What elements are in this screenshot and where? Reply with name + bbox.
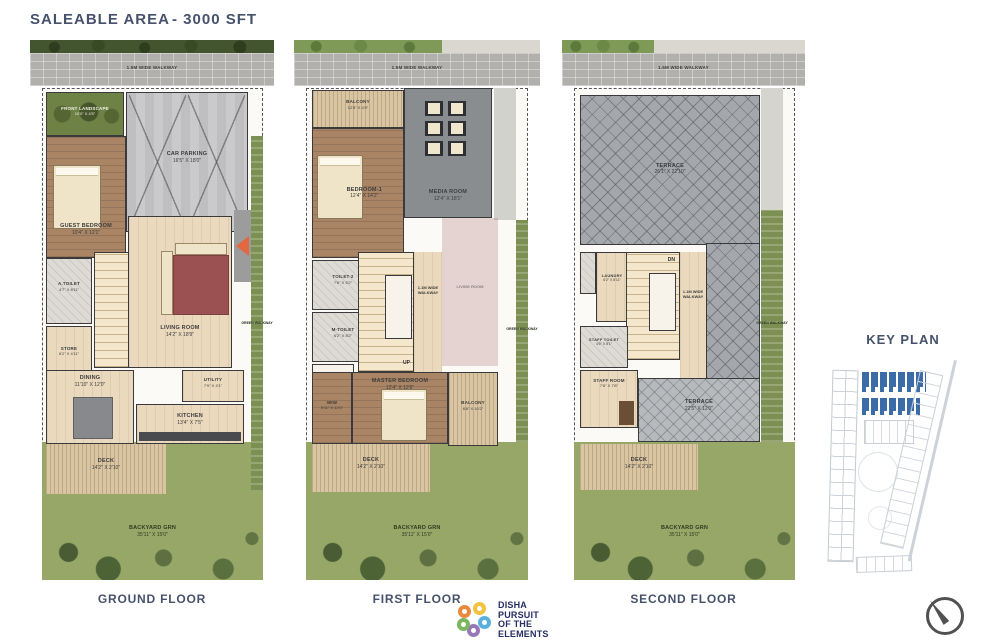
green-walkway-strip: GREEN WALKWAY	[251, 136, 263, 492]
entry-strip	[234, 210, 251, 282]
room-label: WIW	[313, 400, 351, 406]
room-label: MEDIA ROOM	[405, 189, 491, 196]
staircase: DN	[626, 252, 680, 360]
sofa-furniture	[161, 251, 173, 315]
parking-bay-mark	[188, 95, 245, 229]
hedge-strip	[30, 40, 274, 53]
walkway-label: 1.5M WIDE WALKWAY	[562, 65, 805, 71]
room-label: STAFF TOILET	[581, 337, 627, 342]
room-label: DINING	[47, 375, 133, 382]
room-label: LIVING ROOM	[442, 285, 498, 290]
keyplan-bottom-plots	[856, 555, 913, 573]
logo-tagline-line: ELEMENTS	[498, 630, 549, 640]
room-dims: 12'8" X 4'9"	[313, 105, 403, 110]
terrace-upper-arm	[706, 243, 760, 379]
room-guest-bedroom: GUEST BEDROOM10'4" X 12'1"	[46, 136, 126, 258]
kitchen-counter	[139, 432, 241, 441]
room-dims: 7'8" X 7'8"	[581, 383, 637, 388]
green-walkway-strip: GREEN WALKWAY	[516, 220, 528, 442]
room-balcony-rear: BALCONY6'8" X 10'2"	[448, 372, 498, 446]
room-label: GREEN WALKWAY	[237, 321, 277, 325]
keyplan-left-block	[827, 370, 858, 563]
room-dims: 35'11" X 15'0"	[574, 532, 795, 538]
room-dims: 7'9" X 4'1"	[183, 383, 243, 388]
walkway-label: 1.5M WIDE WALKWAY	[294, 65, 540, 71]
bed-furniture	[53, 165, 101, 229]
pavement-strip	[654, 40, 805, 53]
room-label: BACKYARD GRN	[574, 525, 795, 532]
room-label: LAUNDRY	[597, 273, 627, 278]
entry-arrow-icon	[236, 236, 249, 256]
stairs-direction-label: DN	[668, 257, 675, 263]
room-label: UTILITY	[183, 377, 243, 383]
room-dims: 26'1" X 22'10"	[581, 169, 759, 175]
room-living-room: LIVING ROOM14'2" X 18'9"	[128, 216, 232, 368]
ground-floor-caption: GROUND FLOOR	[30, 592, 274, 606]
room-dims: 11'10" X 12'0"	[47, 382, 133, 388]
room-dims: 4'6" X 8'1"	[581, 342, 627, 346]
room-label: MASTER BEDROOM	[353, 378, 447, 385]
corridor-label: 1.1M WIDE WALKWAY	[680, 290, 706, 300]
corridor-label: 1.1M WIDE WALKWAY	[414, 286, 442, 296]
sofa-furniture	[175, 243, 227, 255]
side-walkway-strip	[761, 88, 783, 210]
room-a-toilet: A.TOILET4'7" X 8'11"	[46, 258, 92, 324]
room-wiw: WIW5'11" X 12'0"	[312, 372, 352, 444]
parking-bay-mark	[129, 95, 186, 229]
room-dims: 14'2" X 2'10"	[312, 464, 430, 470]
room-label: LIVING ROOM	[129, 325, 231, 332]
pavement-strip	[442, 40, 540, 53]
hedge-strip	[294, 40, 442, 53]
front-walkway: 1.5M WIDE WALKWAY	[30, 53, 274, 86]
bed-furniture	[381, 389, 427, 441]
room-label: TERRACE	[581, 163, 759, 170]
room-label: BALCONY	[449, 400, 497, 406]
room-dims: 10'0" X 4'5"	[47, 111, 123, 116]
room-label: FRONT LANDSCAPE	[47, 106, 123, 112]
first-floor-plan: 1.5M WIDE WALKWAY BACKYARD GRN35'11" X 1…	[294, 40, 540, 580]
north-compass-icon	[926, 597, 964, 635]
room-label: STAFF ROOM	[581, 378, 637, 384]
walkway-label: 1.5M WIDE WALKWAY	[30, 65, 274, 71]
logo-flower-icon	[456, 601, 494, 639]
room-dims: 10'4" X 12'1"	[47, 230, 125, 236]
room-dims: 14'2" X 2'10"	[46, 465, 166, 471]
front-walkway: 1.5M WIDE WALKWAY	[294, 53, 540, 86]
room-balcony-front: BALCONY12'8" X 4'9"	[312, 90, 404, 128]
walkway-corridor: 1.1M WIDE WALKWAY	[414, 252, 442, 374]
room-bedroom-1: BEDROOM-112'4" X 14'2"	[312, 128, 404, 258]
media-seats-furniture	[425, 101, 466, 156]
compass-needle	[927, 598, 949, 625]
room-utility: UTILITY7'9" X 4'1"	[182, 370, 244, 402]
walkway-corridor: 1.1M WIDE WALKWAY	[680, 252, 706, 379]
room-laundry: LAUNDRY6'2" X 8'11"	[596, 252, 628, 322]
room-deck: DECK14'2" X 2'10"	[580, 444, 698, 490]
room-label: BACKYARD GRN	[306, 525, 528, 532]
room-dims: 14'2" X 2'10"	[580, 464, 698, 470]
room-label: TERRACE	[639, 399, 759, 406]
room-label: A.TOILET	[47, 281, 91, 287]
room-label: DECK	[312, 457, 430, 464]
room-media-room: MEDIA ROOM12'4" X 18'1"	[404, 88, 492, 218]
staircase: UP	[358, 252, 414, 372]
rug-furniture	[173, 255, 229, 315]
room-staff-room: STAFF ROOM7'8" X 7'8"	[580, 370, 638, 428]
shaft	[580, 252, 596, 294]
stair-void	[385, 275, 412, 339]
room-label: DECK	[46, 458, 166, 465]
room-dims: 35'11" X 15'0"	[42, 532, 263, 538]
room-deck: DECK14'2" X 2'10"	[312, 444, 430, 492]
room-label: BALCONY	[313, 99, 403, 105]
room-label: GREEN WALKWAY	[502, 327, 542, 331]
room-car-parking: CAR PARKING16'5" X 18'0"	[126, 92, 248, 232]
logo-wordmark: DISHA PURSUIT OF THE ELEMENTS	[498, 601, 549, 640]
living-room-void: LIVING ROOM	[442, 218, 498, 366]
ground-floor-plan: 1.5M WIDE WALKWAY BACKYARD GRN35'11" X 1…	[30, 40, 274, 580]
room-terrace-upper: TERRACE26'1" X 22'10"	[580, 95, 760, 245]
second-floor-plan: 1.5M WIDE WALKWAY BACKYARD GRN35'11" X 1…	[562, 40, 805, 580]
room-deck: DECK14'2" X 2'10"	[46, 444, 166, 494]
room-dims: 4'7" X 8'11"	[47, 287, 91, 292]
room-dims: 6'2" X 4'11"	[47, 351, 91, 356]
room-label: DECK	[580, 457, 698, 464]
room-dims: 22'5" X 12'0"	[639, 406, 759, 412]
room-terrace-lower: TERRACE22'5" X 12'0"	[638, 378, 760, 442]
side-walkway-strip	[494, 88, 516, 220]
key-plan-title: KEY PLAN	[828, 332, 978, 347]
stairs-direction-label: UP	[403, 360, 410, 366]
green-walkway-strip: GREEN WALKWAY	[761, 210, 783, 442]
page-title: SALEABLE AREA	[30, 11, 170, 28]
stair-void	[649, 273, 676, 331]
room-dims: 13'4" X 7'5"	[137, 420, 243, 426]
second-floor-caption: SECOND FLOOR	[562, 592, 805, 606]
room-label: KITCHEN	[137, 413, 243, 420]
room-dims: 14'2" X 18'9"	[129, 332, 231, 338]
dining-table-furniture	[73, 397, 113, 439]
front-walkway: 1.5M WIDE WALKWAY	[562, 53, 805, 86]
room-dining: DINING11'10" X 12'0"	[46, 370, 134, 444]
room-label: STORE	[47, 346, 91, 352]
room-dims: 6'2" X 8'11"	[597, 278, 627, 282]
closet-furniture	[619, 401, 634, 425]
room-dims: 35'11" X 15'0"	[306, 532, 528, 538]
room-dims: 6'8" X 10'2"	[449, 406, 497, 411]
room-master-bedroom: MASTER BEDROOM12'4" X 12'6"	[352, 372, 448, 444]
room-kitchen: KITCHEN13'4" X 7'5"	[136, 404, 244, 444]
saleable-area-value: - 3000 SFT	[172, 11, 257, 28]
room-staff-toilet: STAFF TOILET4'6" X 8'1"	[580, 326, 628, 368]
room-label: BACKYARD GRN	[42, 525, 263, 532]
bed-furniture	[317, 155, 363, 219]
room-label: GREEN WALKWAY	[753, 321, 791, 325]
room-front-landscape: FRONT LANDSCAPE10'0" X 4'5"	[46, 92, 124, 136]
room-dims: 12'4" X 18'1"	[405, 196, 491, 202]
room-dims: 5'11" X 12'0"	[313, 405, 351, 410]
key-plan-map	[828, 356, 978, 584]
hedge-strip	[562, 40, 654, 53]
